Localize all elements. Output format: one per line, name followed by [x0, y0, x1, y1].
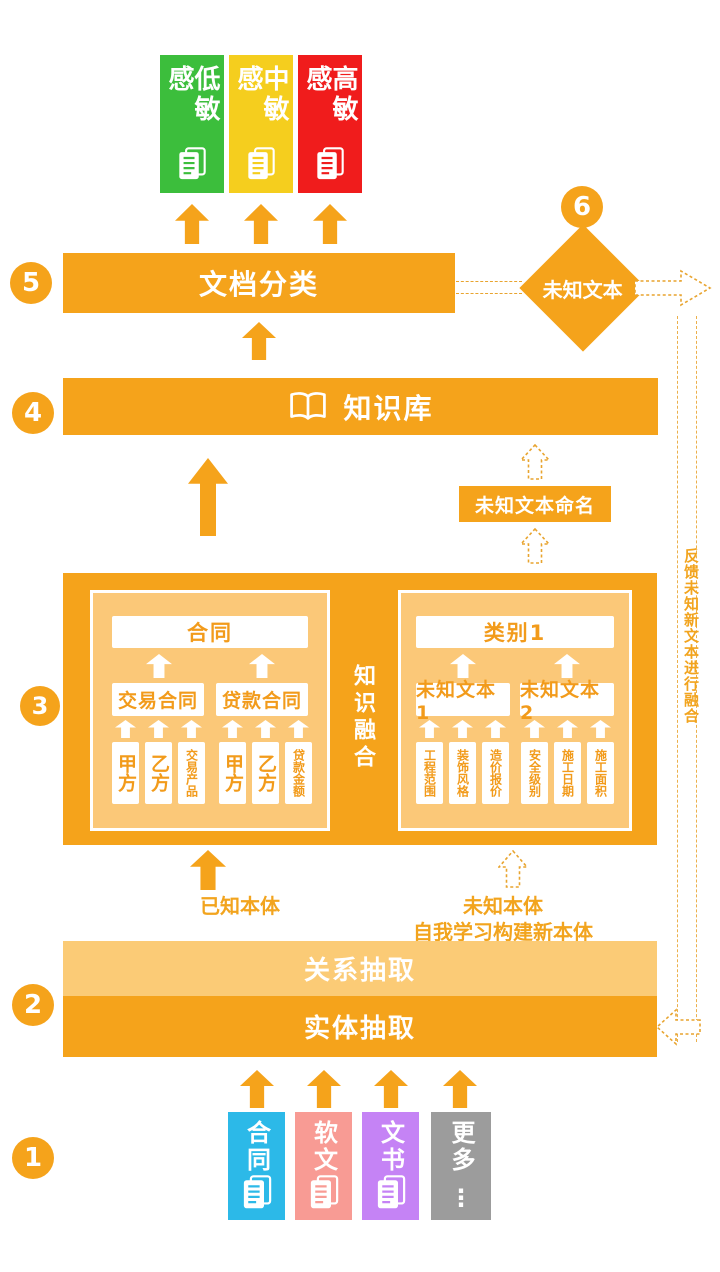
ontology-attribute: 造价报价 [482, 742, 509, 804]
relation-extraction-label: 关系抽取 [304, 950, 416, 987]
ontology-child-node: 贷款合同 [216, 683, 308, 716]
ontology-attribute: 交易产品 [178, 742, 205, 804]
source-label: 合同 [245, 1120, 269, 1174]
ontology-child-node: 交易合同 [112, 683, 204, 716]
ontology-attribute: 乙方 [145, 742, 172, 804]
ontology-attribute: 工程范围 [416, 742, 443, 804]
ontology-attribute: 甲方 [112, 742, 139, 804]
ontology-attribute: 施工日期 [554, 742, 581, 804]
up-arrow-icon [443, 1070, 477, 1108]
ontology-root-node: 类别1 [416, 616, 614, 648]
up-arrow-icon [175, 204, 209, 244]
ontology-attribute: 安全级别 [521, 742, 548, 804]
step-badge-5: 5 [10, 262, 52, 304]
source-box-article: 软文 [295, 1112, 352, 1220]
unknown-text-naming-label: 未知文本命名 [475, 491, 595, 518]
document-icon [245, 147, 277, 181]
dashed-up-arrow-icon [520, 528, 550, 564]
dashed-right-arrow-icon [634, 269, 712, 307]
dashed-left-arrow-icon [655, 1008, 701, 1046]
feedback-label: 反馈未知新文本进行融合 [678, 548, 698, 724]
unknown-ontology-label: 未知本体 自我学习构建新本体 [378, 893, 628, 945]
knowledge-base-label: 知识库 [343, 387, 433, 427]
source-box-contract: 合同 [228, 1112, 285, 1220]
step-badge-3: 3 [20, 686, 60, 726]
up-arrow-icon [240, 1070, 274, 1108]
ontology-attribute: 贷款金额 [285, 742, 312, 804]
up-arrow-icon [313, 204, 347, 244]
document-icon [309, 1175, 339, 1210]
source-label: 软文 [312, 1120, 336, 1174]
ontology-attribute: 施工面积 [587, 742, 614, 804]
document-icon [314, 147, 346, 181]
up-arrow-icon [374, 1070, 408, 1108]
sensitivity-box-medium: 中敏感 [229, 55, 293, 193]
ontology-attribute: 乙方 [252, 742, 279, 804]
doc-classification-label: 文档分类 [199, 263, 319, 303]
source-label: 更多 [449, 1120, 473, 1174]
dashed-up-arrow-icon [520, 444, 550, 480]
ontology-attribute: 甲方 [219, 742, 246, 804]
sensitivity-box-low: 低敏感 [160, 55, 224, 193]
unknown-ontology-line1: 未知本体 [378, 893, 628, 919]
source-box-paperwork: 文书 [362, 1112, 419, 1220]
step-badge-6: 6 [561, 186, 603, 228]
sensitivity-label-low: 低敏感 [166, 65, 218, 147]
unknown-text-naming-box: 未知文本命名 [459, 486, 611, 522]
up-arrow-icon [190, 850, 226, 890]
up-arrow-icon [188, 458, 228, 536]
ontology-child-node: 未知文本2 [520, 683, 614, 716]
entity-extraction-bar: 实体抽取 [63, 996, 657, 1057]
ontology-attribute: 装饰风格 [449, 742, 476, 804]
pipeline-diagram: 低敏感 中敏感 高敏感 5 文档分类 6 未知文本 [0, 0, 720, 1272]
relation-extraction-bar: 关系抽取 [63, 941, 657, 996]
sensitivity-box-high: 高敏感 [298, 55, 362, 193]
document-icon [376, 1175, 406, 1210]
ontology-child-node: 未知文本1 [416, 683, 510, 716]
sensitivity-label-high: 高敏感 [304, 65, 356, 147]
step-badge-1: 1 [12, 1137, 54, 1179]
known-ontology-label: 已知本体 [168, 893, 312, 919]
open-book-icon [287, 391, 329, 422]
knowledge-base-bar: 知识库 [63, 378, 658, 435]
knowledge-fusion-label: 知识融合 [346, 664, 374, 772]
step-badge-2: 2 [12, 984, 54, 1026]
step-badge-4: 4 [12, 392, 54, 434]
doc-classification-bar: 文档分类 [63, 253, 455, 313]
up-arrow-icon [307, 1070, 341, 1108]
document-icon [176, 147, 208, 181]
source-label: 文书 [379, 1120, 403, 1174]
up-arrow-icon [244, 204, 278, 244]
dashed-up-arrow-icon [498, 850, 528, 888]
ontology-root-node: 合同 [112, 616, 308, 648]
source-box-more: 更多 ⋮ [431, 1112, 491, 1220]
up-arrow-icon [242, 322, 276, 360]
document-icon [242, 1175, 272, 1210]
more-ellipsis: ⋮ [449, 1186, 473, 1210]
entity-extraction-label: 实体抽取 [304, 1008, 416, 1045]
sensitivity-label-medium: 中敏感 [235, 65, 287, 147]
unknown-text-label: 未知文本 [543, 274, 623, 303]
dashed-connector [456, 281, 522, 294]
unknown-text-diamond: 未知文本 [519, 224, 646, 351]
